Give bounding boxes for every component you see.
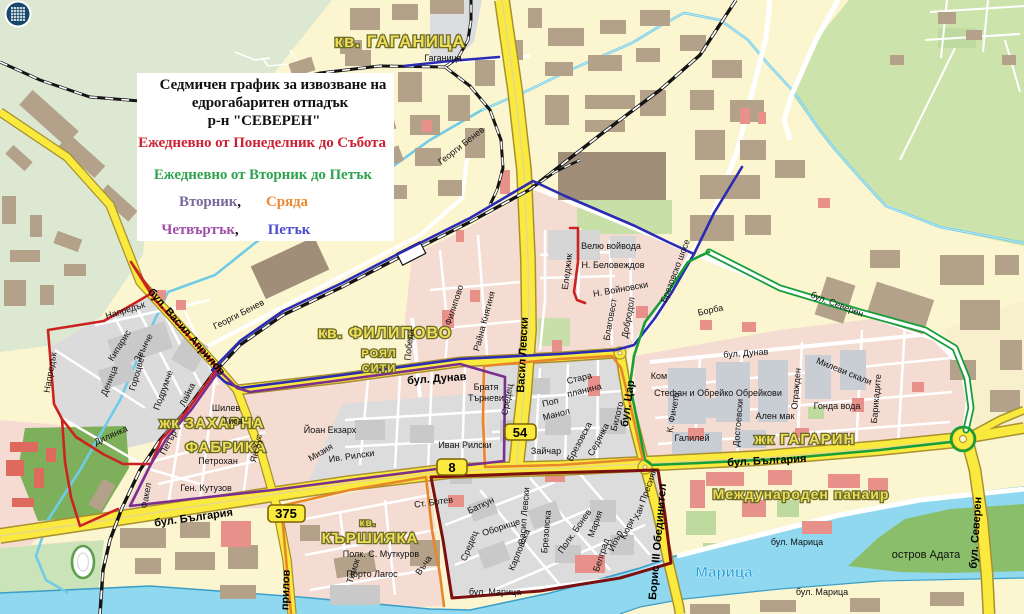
svg-text:РОЯЛ: РОЯЛ: [361, 348, 396, 360]
svg-text:Велю войвода: Велю войвода: [581, 241, 641, 251]
svg-text:Ком: Ком: [651, 371, 667, 381]
svg-text:Търневи: Търневи: [468, 393, 504, 403]
svg-text:Петък: Петък: [268, 222, 311, 238]
svg-text:Гонда вода: Гонда вода: [814, 401, 861, 411]
svg-text:Ежедневно от Вторник до Петък: Ежедневно от Вторник до Петък: [154, 167, 373, 183]
svg-text:Вторник,: Вторник,: [179, 194, 241, 210]
svg-text:Сряда: Сряда: [266, 194, 308, 210]
svg-text:Четвъртък,: Четвъртък,: [161, 222, 239, 238]
svg-text:кв. ФИЛИПОВО: кв. ФИЛИПОВО: [318, 325, 452, 342]
svg-text:Седмичен график за извозване н: Седмичен график за извозване на: [160, 77, 387, 93]
svg-text:Гаганица: Гаганица: [424, 53, 462, 63]
svg-text:Братя: Братя: [474, 382, 499, 392]
svg-text:Марица: Марица: [695, 564, 753, 581]
svg-text:Йоан Екзарх: Йоан Екзарх: [304, 424, 357, 435]
svg-text:Шилев: Шилев: [212, 403, 241, 413]
svg-text:кв.: кв.: [360, 518, 377, 529]
svg-text:54: 54: [513, 425, 528, 440]
svg-text:бул. Марица: бул. Марица: [796, 587, 848, 597]
svg-text:375: 375: [275, 506, 297, 521]
svg-text:8: 8: [448, 460, 455, 475]
svg-text:кв. ГАГАНИЦА: кв. ГАГАНИЦА: [334, 32, 465, 51]
svg-text:КЪРШИЯКА: КЪРШИЯКА: [322, 530, 419, 547]
svg-text:Петрохан: Петрохан: [198, 456, 238, 466]
svg-text:бул. Марица: бул. Марица: [469, 587, 521, 597]
svg-text:Ген. Кутузов: Ген. Кутузов: [180, 483, 232, 493]
svg-text:жк ГАГАРИН: жк ГАГАРИН: [754, 431, 856, 448]
svg-text:р-н "СЕВЕРЕН": р-н "СЕВЕРЕН": [208, 113, 321, 129]
svg-text:остров Адата: остров Адата: [892, 549, 961, 561]
svg-text:Полк. С. Муткуров: Полк. С. Муткуров: [343, 549, 420, 559]
svg-text:едрогабаритен отпадък: едрогабаритен отпадък: [192, 95, 349, 111]
svg-text:Зайчар: Зайчар: [531, 446, 561, 456]
svg-text:Галилей: Галилей: [675, 433, 710, 443]
svg-text:Тиса: Тиса: [223, 416, 243, 426]
svg-text:жк ЗАХАРНА: жк ЗАХАРНА: [158, 415, 264, 432]
svg-text:Ален мак: Ален мак: [756, 411, 795, 421]
svg-text:Ежедневно от Понеделник до Съб: Ежедневно от Понеделник до Събота: [138, 135, 386, 151]
svg-text:СИТИ: СИТИ: [362, 363, 396, 375]
svg-text:бул. Марица: бул. Марица: [771, 537, 823, 547]
svg-text:Н. Беловеждов: Н. Беловеждов: [581, 260, 644, 270]
svg-text:Международен панаир: Международен панаир: [713, 486, 890, 502]
svg-text:прилов: прилов: [279, 569, 292, 610]
svg-text:Иван Рилски: Иван Рилски: [438, 440, 491, 450]
